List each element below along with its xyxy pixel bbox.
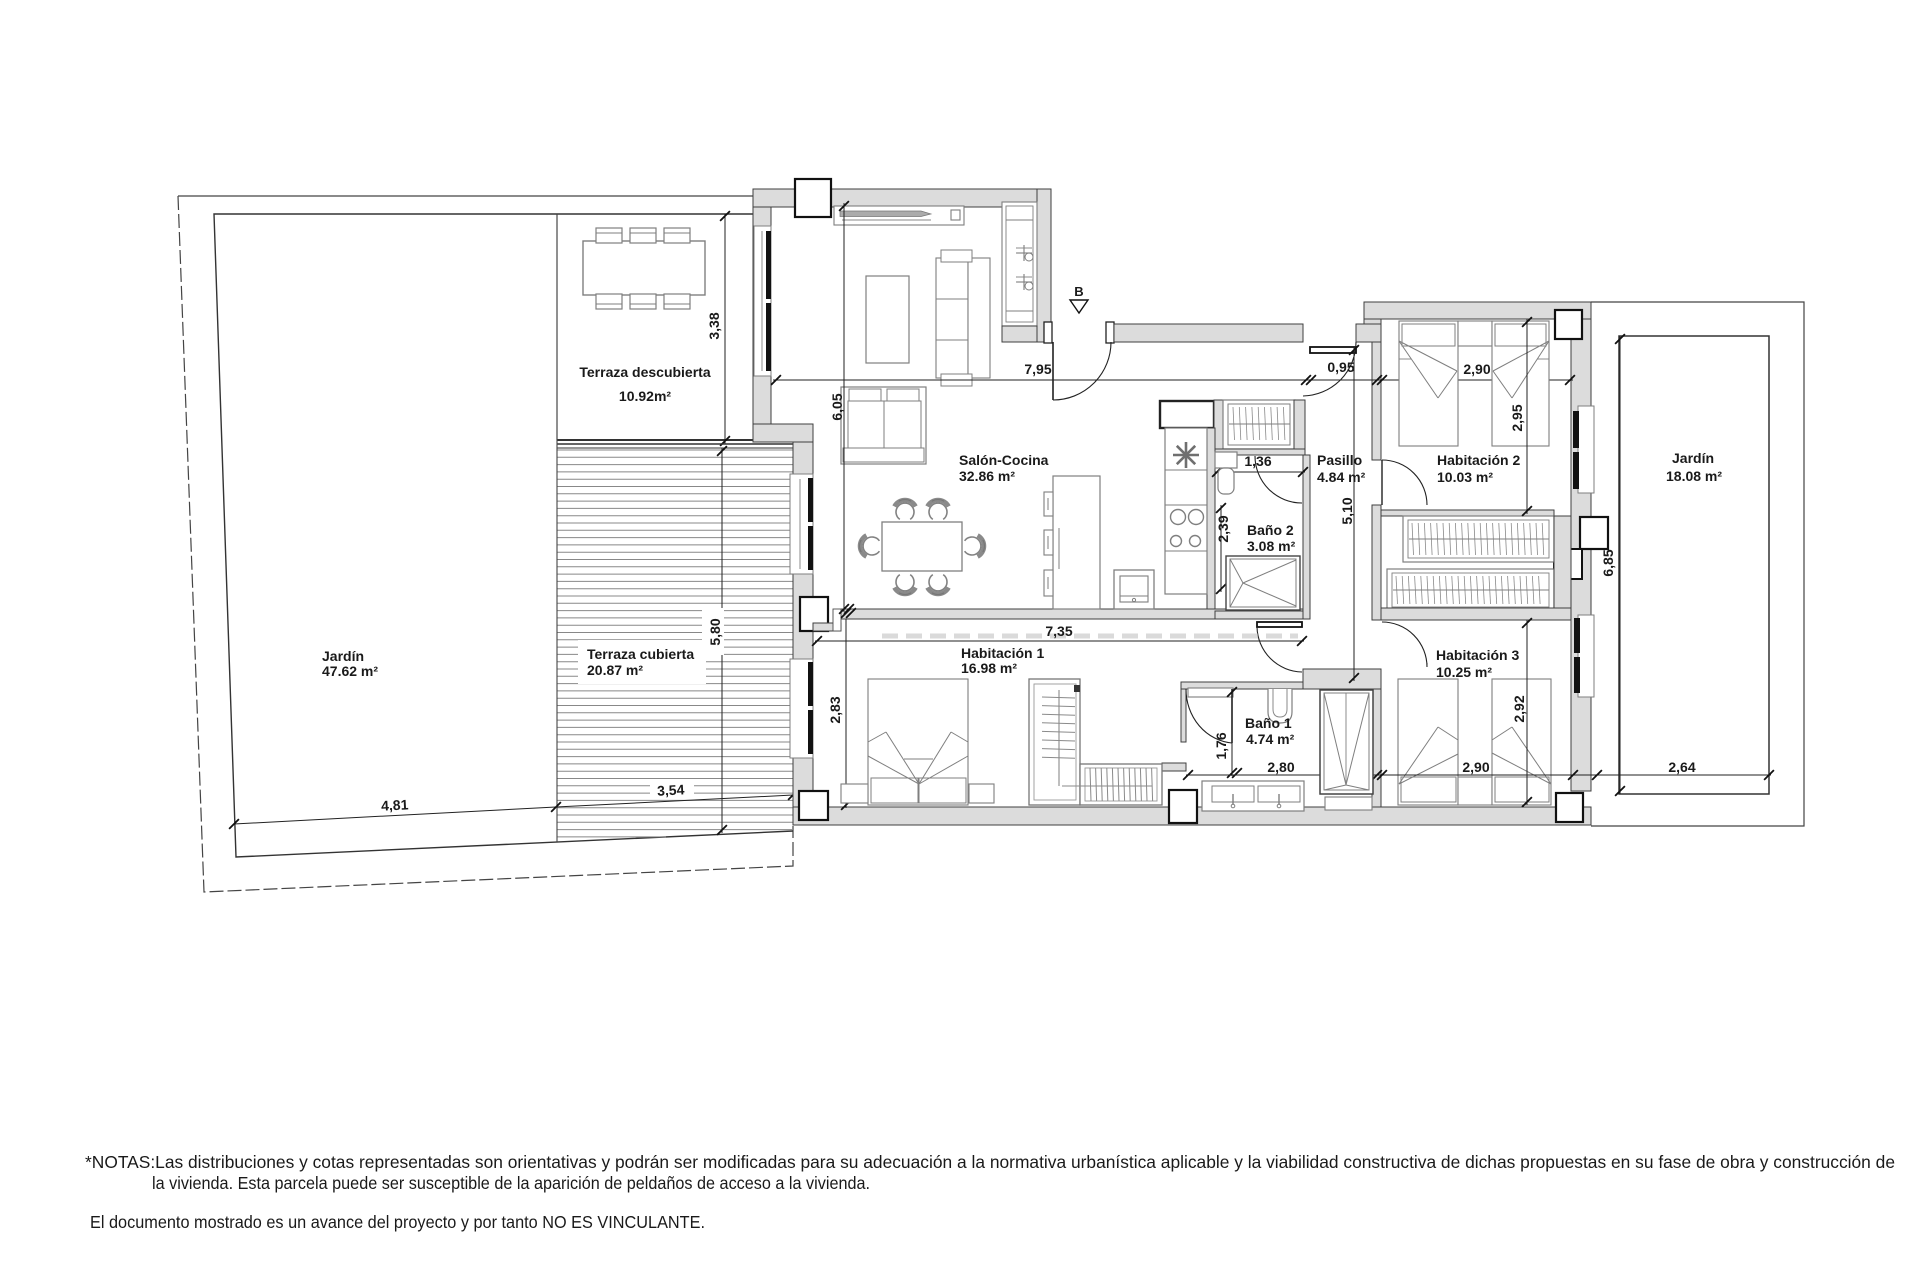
svg-text:4.84 m²: 4.84 m² bbox=[1317, 469, 1366, 485]
svg-text:Salón-Cocina: Salón-Cocina bbox=[959, 452, 1049, 468]
svg-text:5,80: 5,80 bbox=[707, 618, 723, 645]
svg-text:3.08 m²: 3.08 m² bbox=[1247, 538, 1296, 554]
svg-text:10.92m²: 10.92m² bbox=[619, 388, 671, 404]
svg-text:4.74 m²: 4.74 m² bbox=[1246, 731, 1295, 747]
svg-text:6,85: 6,85 bbox=[1600, 549, 1616, 576]
svg-text:Baño 2: Baño 2 bbox=[1247, 522, 1294, 538]
svg-text:20.87 m²: 20.87 m² bbox=[587, 662, 643, 678]
svg-text:Terraza cubierta: Terraza cubierta bbox=[587, 646, 694, 662]
svg-text:3,38: 3,38 bbox=[706, 312, 722, 339]
svg-text:1,36: 1,36 bbox=[1244, 453, 1271, 469]
svg-text:16.98 m²: 16.98 m² bbox=[961, 660, 1017, 676]
svg-text:10.03 m²: 10.03 m² bbox=[1437, 469, 1493, 485]
svg-text:Jardín: Jardín bbox=[322, 648, 364, 664]
svg-text:Baño 1: Baño 1 bbox=[1245, 715, 1292, 731]
svg-text:2,90: 2,90 bbox=[1462, 759, 1489, 775]
svg-text:6,05: 6,05 bbox=[829, 393, 845, 420]
svg-text:0,95: 0,95 bbox=[1327, 359, 1354, 375]
svg-text:Habitación 2: Habitación 2 bbox=[1437, 452, 1520, 468]
svg-text:18.08 m²: 18.08 m² bbox=[1666, 468, 1722, 484]
svg-text:2,90: 2,90 bbox=[1463, 361, 1490, 377]
svg-text:1,76: 1,76 bbox=[1213, 732, 1229, 759]
svg-text:2,80: 2,80 bbox=[1267, 759, 1294, 775]
svg-text:B: B bbox=[1074, 284, 1083, 299]
svg-text:2,64: 2,64 bbox=[1668, 759, 1695, 775]
svg-text:2,83: 2,83 bbox=[827, 696, 843, 723]
svg-text:Terraza descubierta: Terraza descubierta bbox=[579, 364, 710, 380]
svg-text:2,39: 2,39 bbox=[1215, 515, 1231, 542]
svg-text:2,92: 2,92 bbox=[1511, 695, 1527, 722]
svg-text:7,95: 7,95 bbox=[1024, 361, 1051, 377]
svg-text:Jardín: Jardín bbox=[1672, 450, 1714, 466]
svg-text:Habitación 3: Habitación 3 bbox=[1436, 647, 1519, 663]
svg-text:Pasillo: Pasillo bbox=[1317, 452, 1362, 468]
svg-text:3,54: 3,54 bbox=[657, 781, 685, 798]
svg-text:2,95: 2,95 bbox=[1509, 404, 1525, 431]
svg-text:Habitación 1: Habitación 1 bbox=[961, 645, 1044, 661]
svg-text:7,35: 7,35 bbox=[1045, 623, 1072, 639]
svg-text:El documento mostrado es un av: El documento mostrado es un avance del p… bbox=[90, 1212, 705, 1232]
svg-text:32.86 m²: 32.86 m² bbox=[959, 468, 1015, 484]
svg-text:10.25 m²: 10.25 m² bbox=[1436, 664, 1492, 680]
svg-text:*NOTAS:Las distribuciones y co: *NOTAS:Las distribuciones y cotas repres… bbox=[85, 1152, 1895, 1172]
svg-text:47.62 m²: 47.62 m² bbox=[322, 663, 378, 679]
svg-text:la vivienda. Esta parcela pued: la vivienda. Esta parcela puede ser susc… bbox=[152, 1173, 870, 1193]
svg-text:5,10: 5,10 bbox=[1339, 497, 1355, 524]
svg-text:4,81: 4,81 bbox=[381, 796, 409, 813]
